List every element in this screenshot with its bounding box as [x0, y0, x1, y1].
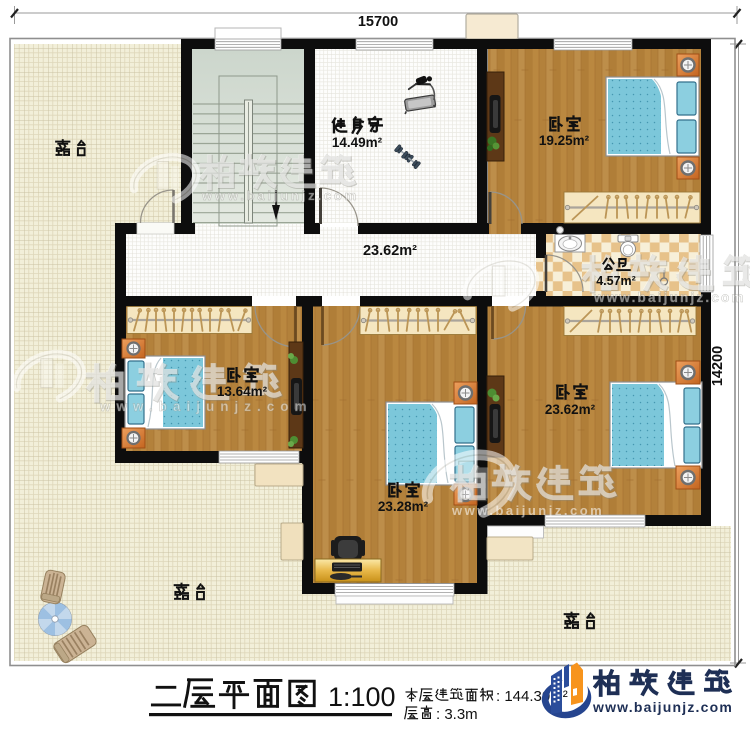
- svg-text:4.57m²: 4.57m²: [596, 274, 636, 288]
- svg-text:www.baijunjz.com: www.baijunjz.com: [99, 399, 313, 414]
- svg-text:www.baijunjz.com: www.baijunjz.com: [593, 290, 746, 305]
- svg-text:15700: 15700: [358, 14, 398, 30]
- svg-text:23.62m²: 23.62m²: [363, 243, 417, 259]
- svg-text:19.25m²: 19.25m²: [539, 133, 590, 148]
- svg-text:www.baijunjz.com: www.baijunjz.com: [201, 188, 359, 203]
- svg-text:23.62m²: 23.62m²: [545, 402, 596, 417]
- svg-text:: 3.3m: : 3.3m: [436, 706, 478, 723]
- svg-text:www.baijunjz.com: www.baijunjz.com: [592, 699, 733, 715]
- svg-text:14200: 14200: [710, 346, 726, 386]
- svg-text:www.baijunjz.com: www.baijunjz.com: [451, 503, 604, 518]
- svg-text:14.49m²: 14.49m²: [332, 135, 383, 150]
- svg-text:13.64m²: 13.64m²: [217, 384, 268, 399]
- svg-text:23.28m²: 23.28m²: [378, 499, 429, 514]
- svg-text:1:100: 1:100: [328, 682, 396, 712]
